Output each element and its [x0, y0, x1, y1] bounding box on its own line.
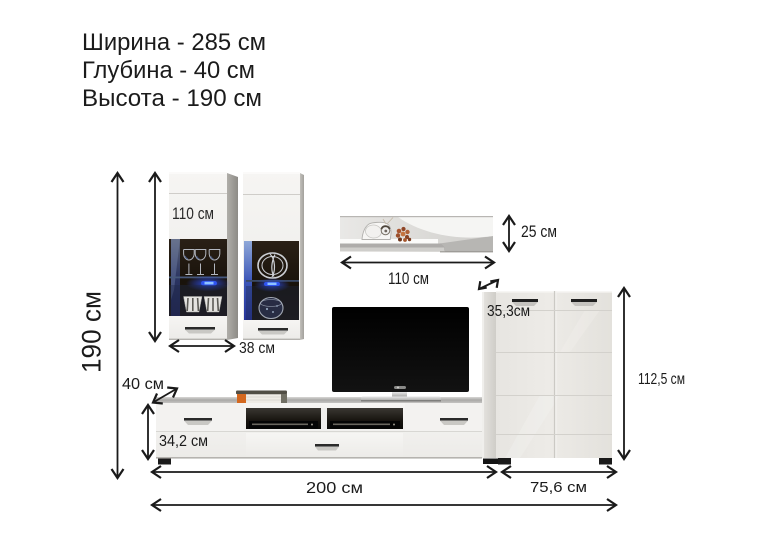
- svg-text:34,2 см: 34,2 см: [159, 433, 208, 450]
- svg-text:112,5 см: 112,5 см: [638, 371, 685, 388]
- svg-text:35,3см: 35,3см: [487, 303, 530, 320]
- svg-text:25 см: 25 см: [521, 222, 557, 241]
- svg-text:40 см: 40 см: [122, 376, 164, 393]
- svg-text:75,6 см: 75,6 см: [530, 479, 587, 496]
- svg-text:110 см: 110 см: [172, 204, 214, 223]
- svg-text:190 см: 190 см: [77, 291, 107, 373]
- svg-text:Высота - 190 см: Высота - 190 см: [82, 85, 262, 112]
- svg-text:200 см: 200 см: [306, 480, 363, 497]
- svg-text:38 см: 38 см: [239, 340, 275, 357]
- svg-text:Ширина - 285 см: Ширина - 285 см: [82, 29, 266, 56]
- svg-text:Глубина - 40 см: Глубина - 40 см: [82, 57, 255, 84]
- svg-text:110 см: 110 см: [388, 269, 429, 288]
